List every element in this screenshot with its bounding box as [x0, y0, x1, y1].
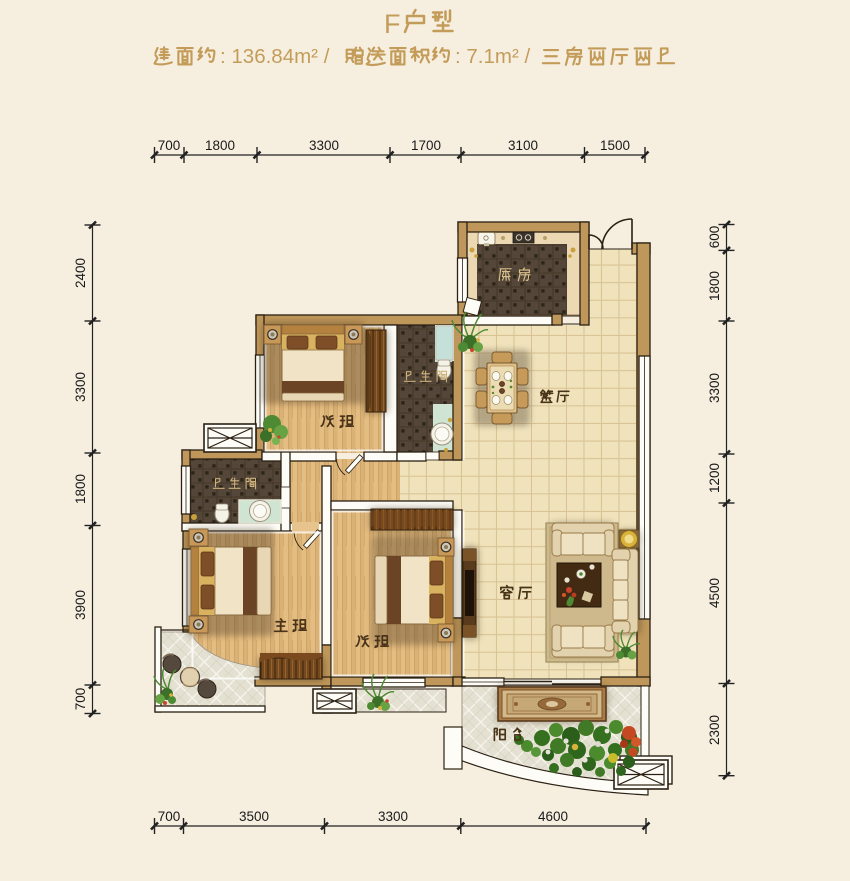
svg-text:4600: 4600	[538, 809, 568, 824]
svg-text:3900: 3900	[73, 590, 88, 620]
svg-text:1800: 1800	[73, 474, 88, 504]
svg-text:700: 700	[158, 138, 181, 153]
svg-text:3300: 3300	[707, 373, 722, 403]
svg-text:3100: 3100	[508, 138, 538, 153]
svg-text:700: 700	[73, 688, 88, 711]
svg-text:2400: 2400	[73, 258, 88, 288]
svg-text:4500: 4500	[707, 578, 722, 608]
svg-text:F: F	[384, 9, 401, 39]
svg-text:600: 600	[707, 226, 722, 249]
svg-text:1500: 1500	[600, 138, 630, 153]
svg-text:3300: 3300	[378, 809, 408, 824]
svg-text:3300: 3300	[309, 138, 339, 153]
svg-text:700: 700	[158, 809, 181, 824]
svg-text:1200: 1200	[707, 463, 722, 493]
svg-text:: 7.1m² /: : 7.1m² /	[455, 45, 530, 68]
svg-text:1800: 1800	[707, 271, 722, 301]
svg-text:: 136.84m² /: : 136.84m² /	[220, 45, 330, 68]
svg-text:1800: 1800	[205, 138, 235, 153]
svg-text:3500: 3500	[239, 809, 269, 824]
svg-text:1700: 1700	[411, 138, 441, 153]
svg-text:2300: 2300	[707, 715, 722, 745]
svg-text:3300: 3300	[73, 372, 88, 402]
